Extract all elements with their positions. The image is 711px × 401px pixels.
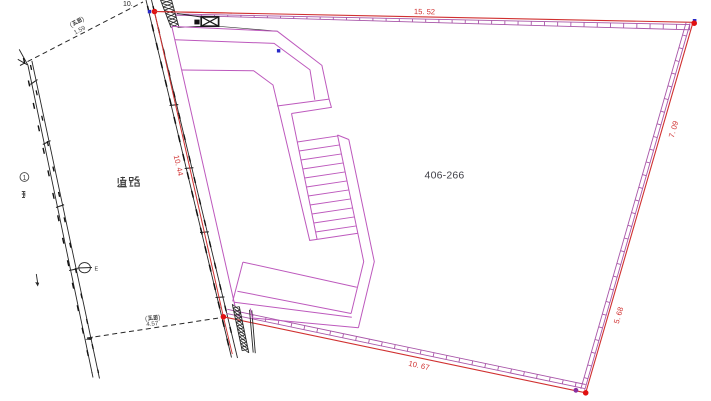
svg-text:10.: 10. bbox=[123, 1, 133, 8]
svg-text:406-266: 406-266 bbox=[425, 170, 465, 182]
svg-text:15. 52: 15. 52 bbox=[414, 7, 435, 16]
svg-text:E: E bbox=[95, 266, 99, 272]
svg-text:1: 1 bbox=[22, 175, 26, 182]
svg-text:4.57: 4.57 bbox=[146, 320, 159, 328]
